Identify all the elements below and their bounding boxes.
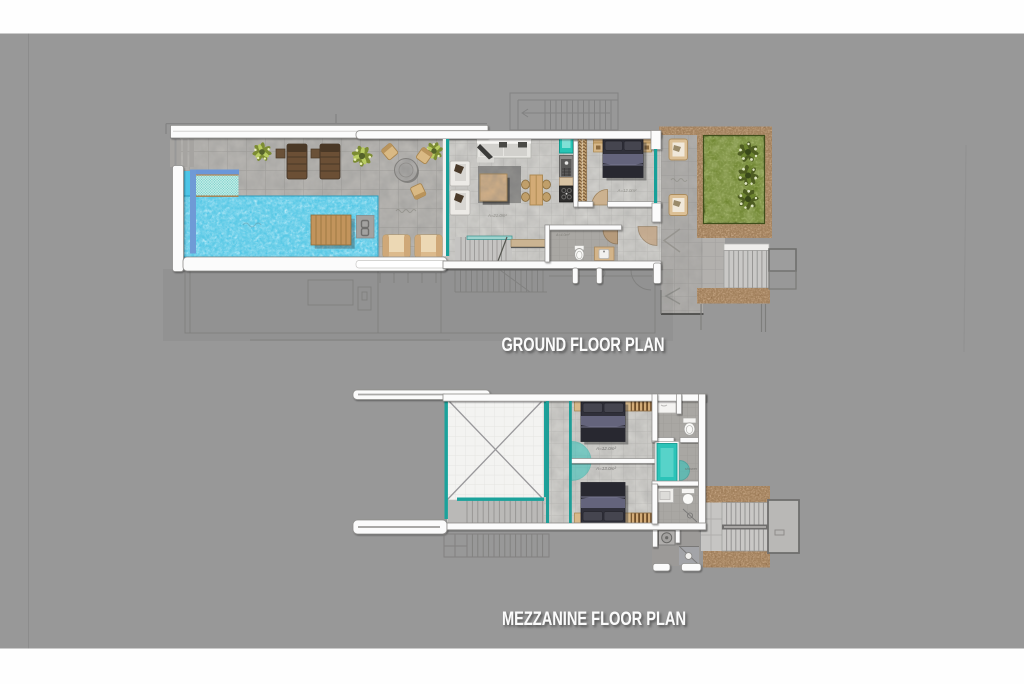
svg-text:A=4.0m²: A=4.0m² <box>555 233 570 237</box>
svg-text:MEZZANINE FLOOR PLAN: MEZZANINE FLOOR PLAN <box>502 609 686 630</box>
svg-text:A=12.0m²: A=12.0m² <box>595 446 617 451</box>
svg-text:shower: shower <box>685 467 698 471</box>
svg-text:A=13.0m²: A=13.0m² <box>595 466 617 471</box>
svg-text:A=12.0m²: A=12.0m² <box>617 188 637 193</box>
svg-text:GROUND FLOOR PLAN: GROUND FLOOR PLAN <box>502 335 665 356</box>
svg-text:A=21.0m²: A=21.0m² <box>487 213 507 218</box>
